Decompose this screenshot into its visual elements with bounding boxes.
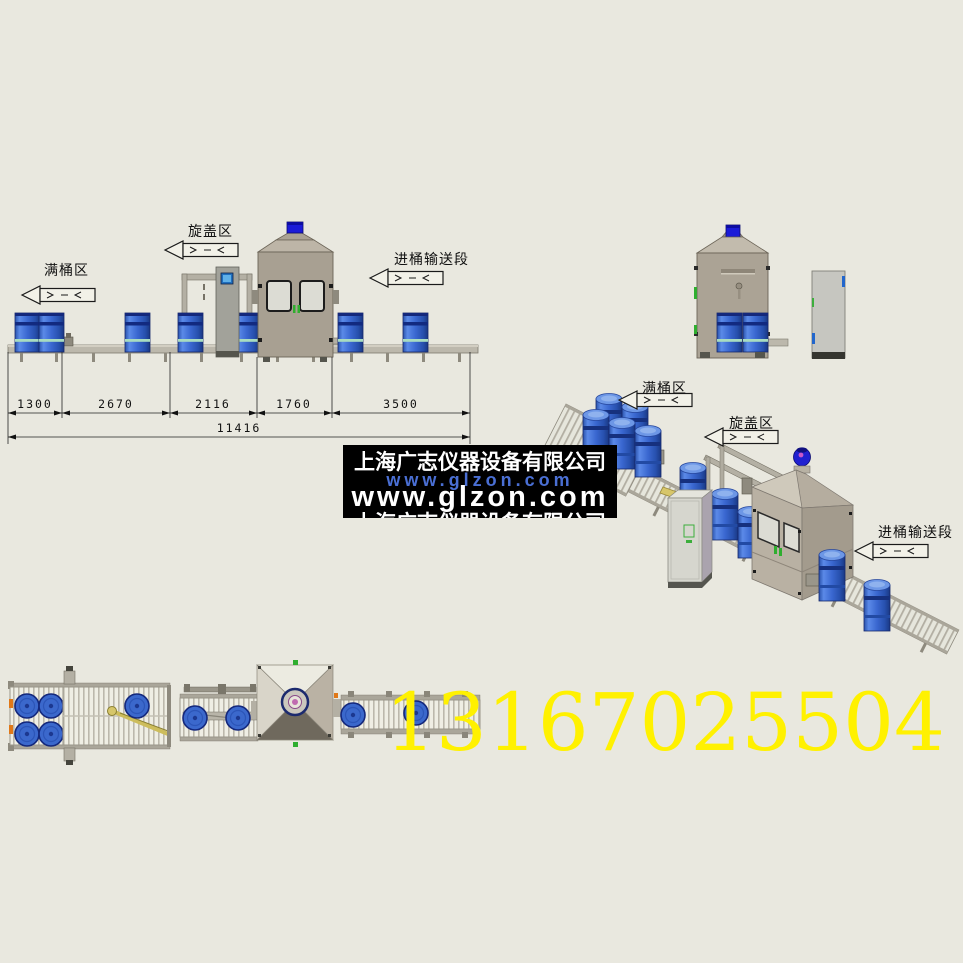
dim-2116: 2116 [183,397,243,411]
flow-arrow-infeed [370,269,443,287]
phone-number: 13167025504 [385,683,945,763]
drum [39,313,64,352]
dim-2670: 2670 [86,397,146,411]
label-full-drum-area-iso: 满桶区 [642,378,687,398]
drum-plan [341,703,365,727]
drum-plan [226,706,250,730]
dim-1760: 1760 [264,397,324,411]
drum [338,313,363,352]
cabin-window [784,523,799,552]
drum-plan [39,722,63,746]
drum [125,313,150,352]
iso-control-cabinet [668,490,712,588]
drum [15,313,40,352]
label-infeed-section: 进桶输送段 [394,249,469,269]
label-capping-area: 旋盖区 [188,221,233,241]
drum-plan [125,694,149,718]
drum [178,313,203,352]
dim-1300: 1300 [5,397,65,411]
dim-total-11416: 11416 [204,421,274,435]
label-capping-area-iso: 旋盖区 [729,413,774,433]
watermark-box: 上海广志仪器设备有限公司 www.glzon.com www.glzon.com… [343,445,617,518]
drum [403,313,428,352]
drum [712,489,738,541]
drum [717,313,742,352]
flow-arrow-full-area [22,286,95,304]
drum [635,426,661,478]
label-infeed-section-iso: 进桶输送段 [878,522,953,542]
drum-plan [15,722,39,746]
cabin-window [300,281,324,311]
conveyor-legs [20,353,461,362]
door-handle [736,283,742,289]
label-full-drum-area: 满桶区 [44,260,89,280]
drawing-canvas: 满桶区 旋盖区 进桶输送段 满桶区 旋盖区 进桶输送段 1300 2670 21… [0,0,963,963]
front-view [694,225,845,359]
cabin-window [267,281,291,311]
filling-cabin-elevation [252,222,350,362]
capping-cabinet [216,267,239,357]
drum [743,313,768,352]
pump-unit [64,333,73,346]
drum [864,580,890,632]
capping-head [742,478,752,494]
control-cabinet-front [812,271,845,359]
drum [819,550,845,602]
drum-plan [15,694,39,718]
cabin-roof-plan [257,660,333,747]
drum-plan [183,706,207,730]
flow-arrow-infeed-iso [855,542,928,560]
drum-plan [39,694,63,718]
flow-arrow-capping [165,241,238,259]
dim-3500: 3500 [371,397,431,411]
watermark-company-repeat: 上海广志仪器设备有限公司 [343,507,617,518]
